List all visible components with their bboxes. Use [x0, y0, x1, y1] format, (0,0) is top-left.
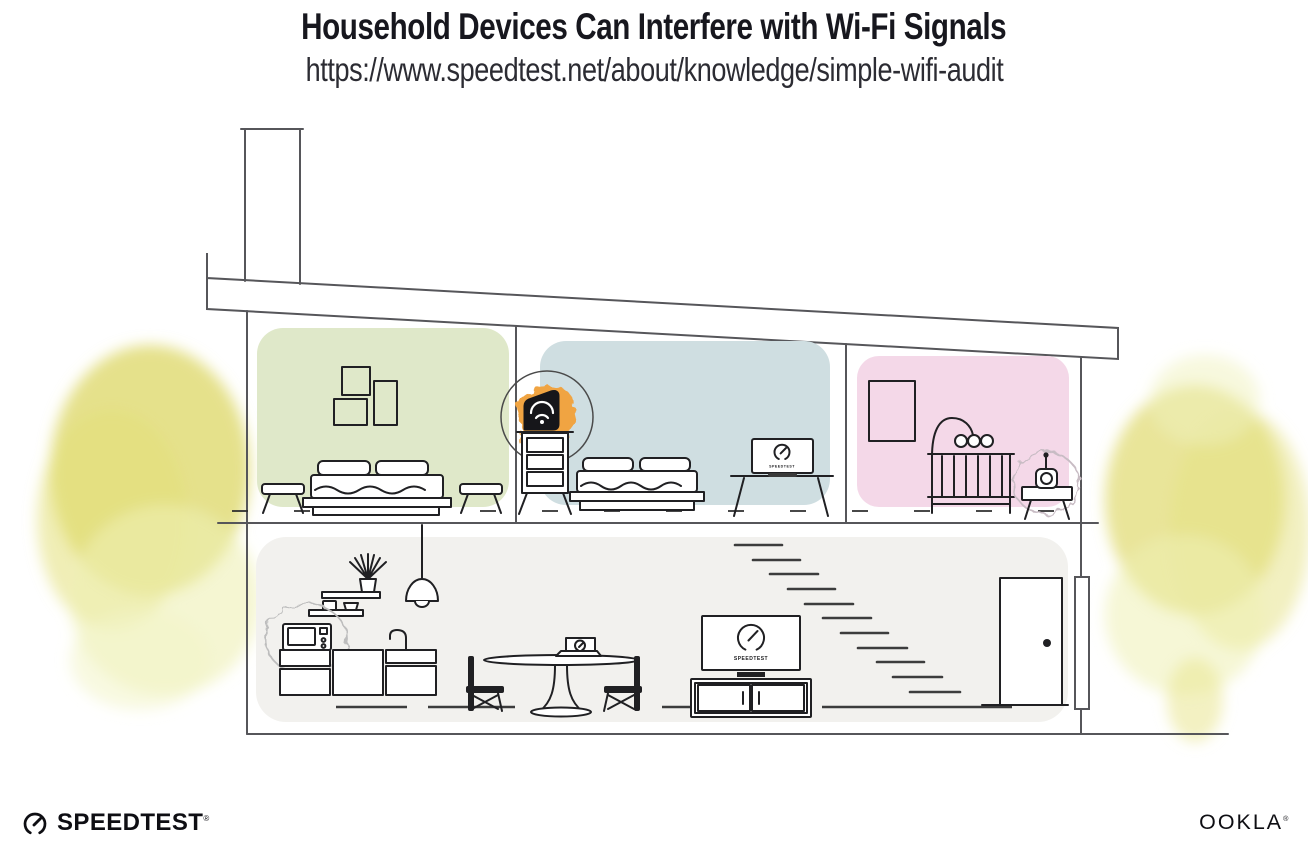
header: Household Devices Can Interfere with Wi-… — [0, 7, 1308, 89]
bed-icon — [303, 461, 451, 515]
svg-text:SPEEDTEST: SPEEDTEST — [734, 656, 768, 662]
ookla-wordmark: OOKLA® — [1200, 811, 1289, 835]
tree-left — [37, 345, 260, 710]
speedtest-wordmark: SPEEDTEST® — [57, 809, 210, 837]
doorknob-icon — [1043, 639, 1051, 647]
media-console-icon — [691, 679, 811, 717]
infographic-page: Household Devices Can Interfere with Wi-… — [0, 0, 1308, 861]
speedtest-gauge-icon — [22, 810, 49, 837]
microwave-icon — [283, 624, 331, 650]
registered-mark: ® — [203, 814, 209, 823]
tree-right — [1105, 355, 1308, 742]
downspout-icon — [1075, 577, 1089, 709]
page-title: Household Devices Can Interfere with Wi-… — [0, 7, 1308, 48]
house-cross-section-illustration: SPEEDTEST — [0, 0, 1308, 861]
svg-text:SPEEDTEST: SPEEDTEST — [769, 465, 795, 469]
tv-icon: SPEEDTEST — [702, 616, 800, 677]
registered-mark: ® — [1284, 816, 1289, 823]
chimney — [245, 129, 300, 284]
source-url: https://www.speedtest.net/about/knowledg… — [0, 51, 1308, 89]
speedtest-logo: SPEEDTEST® — [22, 809, 210, 837]
ookla-logo: OOKLA® — [1200, 811, 1288, 835]
